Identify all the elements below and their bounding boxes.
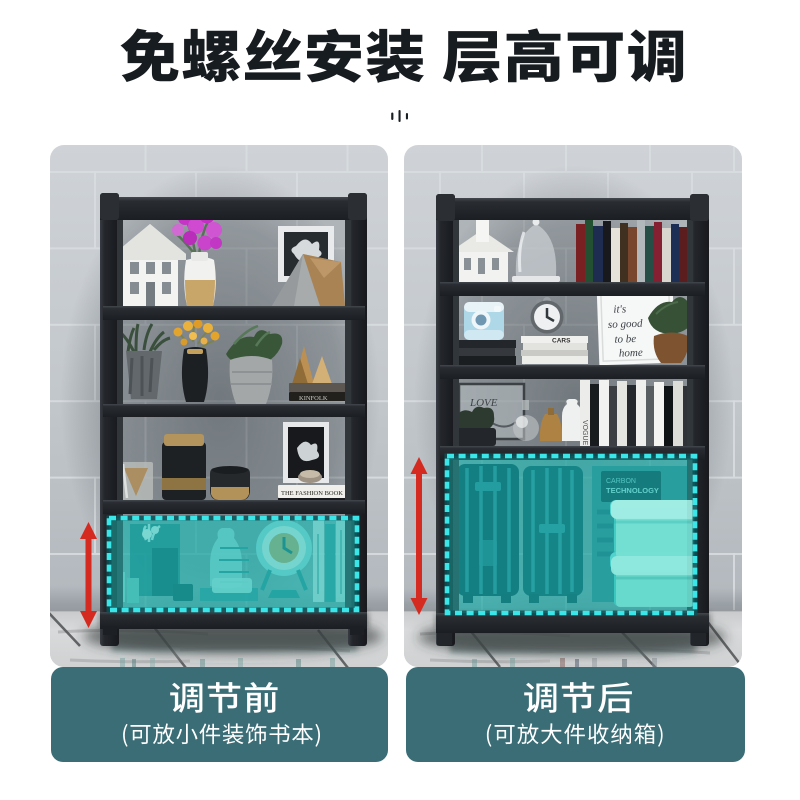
svg-text:VOGUE: VOGUE [581, 420, 588, 446]
svg-text:CARS: CARS [552, 338, 571, 345]
svg-text:so good: so good [608, 318, 643, 331]
svg-text:it's: it's [613, 303, 626, 315]
svg-text:KINFOLK: KINFOLK [299, 395, 328, 402]
svg-text:to be: to be [614, 333, 636, 346]
svg-text:LOVE: LOVE [469, 397, 498, 409]
svg-text:home: home [619, 347, 643, 360]
svg-text:THE FASHION BOOK: THE FASHION BOOK [281, 490, 343, 497]
